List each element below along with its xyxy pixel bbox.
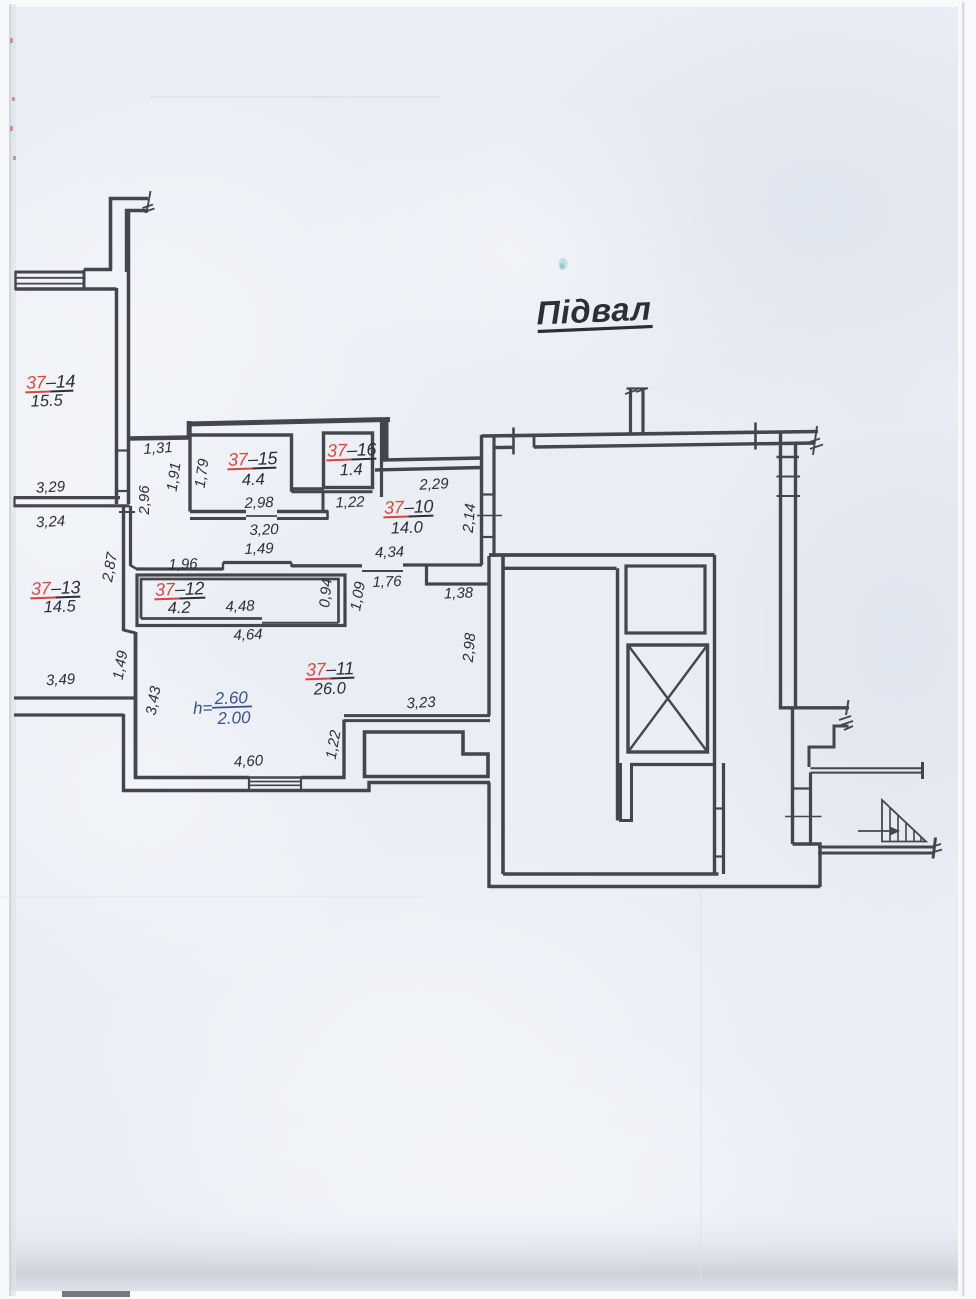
svg-text:2,14: 2,14 xyxy=(460,503,480,535)
svg-text:4,48: 4,48 xyxy=(225,597,255,615)
svg-text:2,96: 2,96 xyxy=(136,485,153,516)
svg-text:–13: –13 xyxy=(50,577,81,598)
svg-text:1,49: 1,49 xyxy=(244,540,274,558)
svg-text:4.2: 4.2 xyxy=(167,599,191,618)
svg-text:1,22: 1,22 xyxy=(335,493,365,511)
svg-text:4,34: 4,34 xyxy=(375,543,405,561)
svg-text:4,60: 4,60 xyxy=(233,752,264,771)
svg-text:14.5: 14.5 xyxy=(43,597,77,616)
svg-text:37: 37 xyxy=(384,497,405,518)
svg-text:–14: –14 xyxy=(45,371,76,392)
svg-text:–12: –12 xyxy=(174,578,205,599)
svg-text:3,20: 3,20 xyxy=(249,521,279,539)
svg-text:1,31: 1,31 xyxy=(143,439,173,458)
svg-text:1,38: 1,38 xyxy=(444,584,474,602)
svg-text:37: 37 xyxy=(228,449,249,470)
svg-text:–10: –10 xyxy=(403,496,434,517)
svg-text:14.0: 14.0 xyxy=(390,518,424,537)
svg-text:2,98: 2,98 xyxy=(460,632,480,664)
svg-text:2,29: 2,29 xyxy=(418,475,450,494)
svg-text:1,76: 1,76 xyxy=(372,573,402,591)
svg-text:3,23: 3,23 xyxy=(406,694,437,713)
svg-text:2,98: 2,98 xyxy=(243,494,274,512)
svg-text:–15: –15 xyxy=(247,448,279,469)
svg-text:3,24: 3,24 xyxy=(36,513,66,532)
svg-text:37: 37 xyxy=(306,659,327,680)
svg-text:1,96: 1,96 xyxy=(168,555,198,573)
svg-text:0,94: 0,94 xyxy=(316,578,335,609)
svg-text:15.5: 15.5 xyxy=(30,392,64,411)
svg-text:3,29: 3,29 xyxy=(35,478,66,497)
svg-text:Підвал: Підвал xyxy=(536,290,653,332)
svg-text:37: 37 xyxy=(155,579,176,600)
svg-text:3,49: 3,49 xyxy=(46,671,77,690)
svg-text:4,64: 4,64 xyxy=(233,626,263,644)
svg-text:37: 37 xyxy=(31,578,52,599)
svg-text:37: 37 xyxy=(26,372,47,393)
svg-text:–11: –11 xyxy=(325,658,354,679)
svg-text:2.00: 2.00 xyxy=(216,708,251,728)
svg-text:2.60: 2.60 xyxy=(213,688,248,708)
svg-text:–16: –16 xyxy=(346,439,378,460)
svg-text:h=: h= xyxy=(193,698,213,718)
svg-text:1.4: 1.4 xyxy=(339,461,363,480)
svg-text:37: 37 xyxy=(327,440,348,461)
svg-text:4.4: 4.4 xyxy=(241,471,265,490)
svg-text:26.0: 26.0 xyxy=(312,679,347,698)
